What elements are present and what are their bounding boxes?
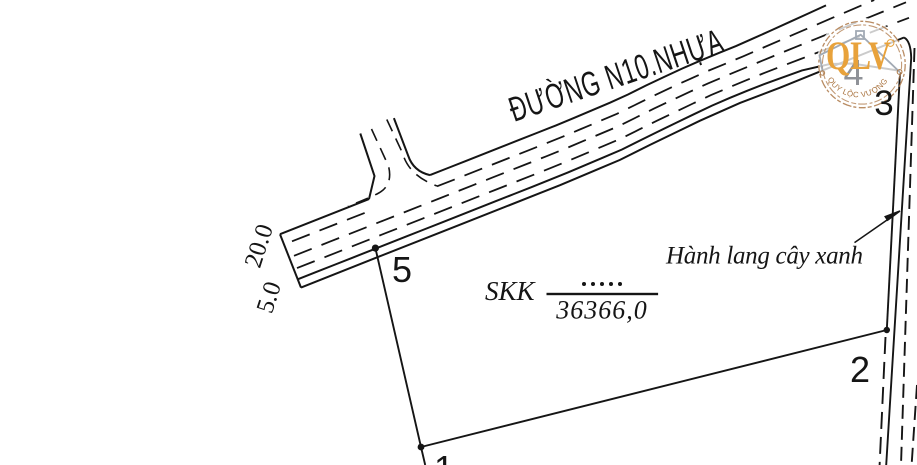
svg-text:5.0: 5.0 — [252, 278, 287, 316]
svg-text:36366,0: 36366,0 — [555, 296, 648, 325]
svg-text:20.0: 20.0 — [240, 221, 279, 271]
svg-text:1: 1 — [434, 448, 454, 465]
svg-text:5: 5 — [392, 249, 412, 290]
svg-text:3: 3 — [874, 84, 893, 123]
svg-text:Hành lang cây xanh: Hành lang cây xanh — [665, 243, 863, 270]
svg-text:SKK: SKK — [485, 276, 537, 306]
svg-text:QLV: QLV — [826, 33, 891, 78]
svg-text:2: 2 — [850, 349, 870, 390]
